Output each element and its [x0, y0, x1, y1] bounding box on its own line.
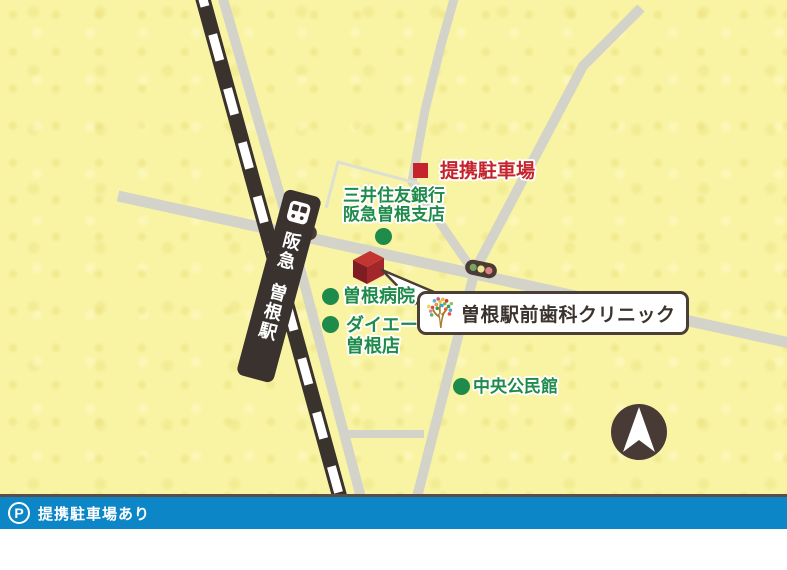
landmark-daiei-label: ダイエー 曽根店 — [346, 315, 418, 357]
train-front-icon — [284, 198, 313, 227]
bottom-whitespace — [0, 529, 787, 570]
map-screenshot: 阪急 曽根駅 提携駐車場 三井住友銀行 阪急曽根支店 曽根病院 ダイエー 曽根店… — [0, 0, 787, 570]
landmark-bank-label: 三井住友銀行 阪急曽根支店 — [343, 186, 445, 224]
landmark-dot — [375, 228, 392, 245]
north-arrow-icon — [611, 404, 667, 460]
parking-marker-label: 提携駐車場 — [440, 156, 535, 183]
landmark-bank-line2: 阪急曽根支店 — [343, 205, 445, 224]
station-name: 曽根駅 — [256, 281, 289, 344]
railway-line-name: 阪急 — [274, 230, 302, 273]
road-northeast — [415, 8, 641, 494]
footer-note: 提携駐車場あり — [38, 503, 150, 524]
road-north-center — [412, 0, 471, 268]
footer-bar: P 提携駐車場あり — [0, 497, 787, 529]
landmark-daiei-line2: 曽根店 — [346, 336, 418, 357]
parking-marker-square — [413, 163, 428, 178]
landmark-bank-line1: 三井住友銀行 — [343, 186, 445, 205]
landmark-dot — [453, 378, 470, 395]
clinic-name: 曽根駅前歯科クリニック — [461, 300, 676, 327]
landmark-dot — [322, 288, 339, 305]
clinic-building-icon — [353, 251, 384, 284]
map-canvas: 阪急 曽根駅 提携駐車場 三井住友銀行 阪急曽根支店 曽根病院 ダイエー 曽根店… — [0, 0, 787, 497]
tree-logo-icon — [426, 296, 456, 330]
landmark-daiei-line1: ダイエー — [346, 315, 418, 336]
landmark-dot — [322, 316, 339, 333]
parking-p-icon: P — [8, 502, 30, 524]
clinic-label-box: 曽根駅前歯科クリニック — [417, 291, 689, 335]
landmark-community-label: 中央公民館 — [473, 377, 558, 396]
map-graphics — [0, 0, 787, 494]
landmark-hospital-label: 曽根病院 — [343, 287, 415, 306]
